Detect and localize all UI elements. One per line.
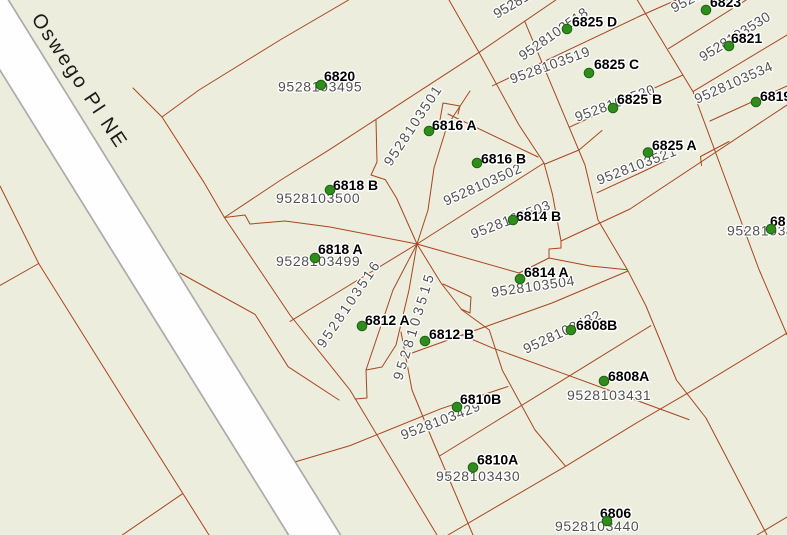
svg-text:9528103430: 9528103430 — [436, 468, 520, 484]
svg-text:6810A: 6810A — [477, 452, 518, 468]
svg-text:6816 B: 6816 B — [481, 151, 526, 167]
svg-text:6810B: 6810B — [460, 391, 501, 407]
svg-text:6825 B: 6825 B — [617, 91, 662, 107]
svg-text:9528103431: 9528103431 — [567, 387, 651, 403]
svg-text:6814 B: 6814 B — [516, 208, 561, 224]
svg-text:6825 D: 6825 D — [572, 14, 617, 30]
svg-text:6818 B: 6818 B — [333, 177, 378, 193]
svg-text:6821: 6821 — [731, 30, 762, 46]
svg-text:6823: 6823 — [710, 0, 741, 10]
svg-text:6816 A: 6816 A — [432, 117, 477, 133]
svg-text:6812 A: 6812 A — [365, 312, 410, 328]
svg-text:6814 A: 6814 A — [524, 264, 569, 280]
svg-text:6819: 6819 — [760, 88, 787, 104]
svg-text:6808A: 6808A — [608, 368, 649, 384]
svg-text:6825 A: 6825 A — [652, 137, 697, 153]
svg-text:6812 B: 6812 B — [429, 326, 474, 342]
svg-text:6820: 6820 — [324, 68, 355, 84]
svg-text:6818 A: 6818 A — [318, 241, 363, 257]
svg-text:6825 C: 6825 C — [594, 56, 639, 72]
svg-text:6808B: 6808B — [576, 317, 617, 333]
